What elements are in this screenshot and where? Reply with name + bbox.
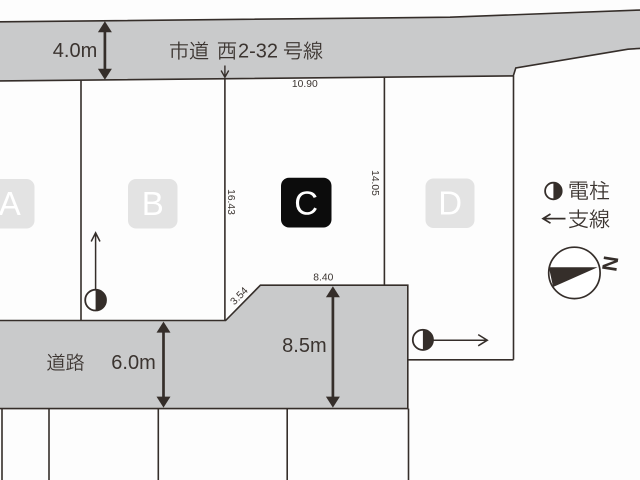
- svg-text:B: B: [142, 185, 164, 222]
- svg-text:6.0m: 6.0m: [111, 352, 155, 374]
- svg-text:4.0m: 4.0m: [53, 40, 97, 62]
- svg-text:D: D: [438, 185, 462, 222]
- svg-text:8.40: 8.40: [313, 273, 333, 284]
- svg-text:C: C: [294, 184, 318, 221]
- svg-text:A: A: [0, 185, 21, 222]
- svg-text:10.90: 10.90: [292, 79, 318, 90]
- svg-text:14.05: 14.05: [369, 170, 380, 196]
- svg-text:8.5m: 8.5m: [282, 335, 326, 357]
- svg-text:16.43: 16.43: [225, 189, 236, 215]
- svg-text:2-32: 2-32: [238, 40, 278, 62]
